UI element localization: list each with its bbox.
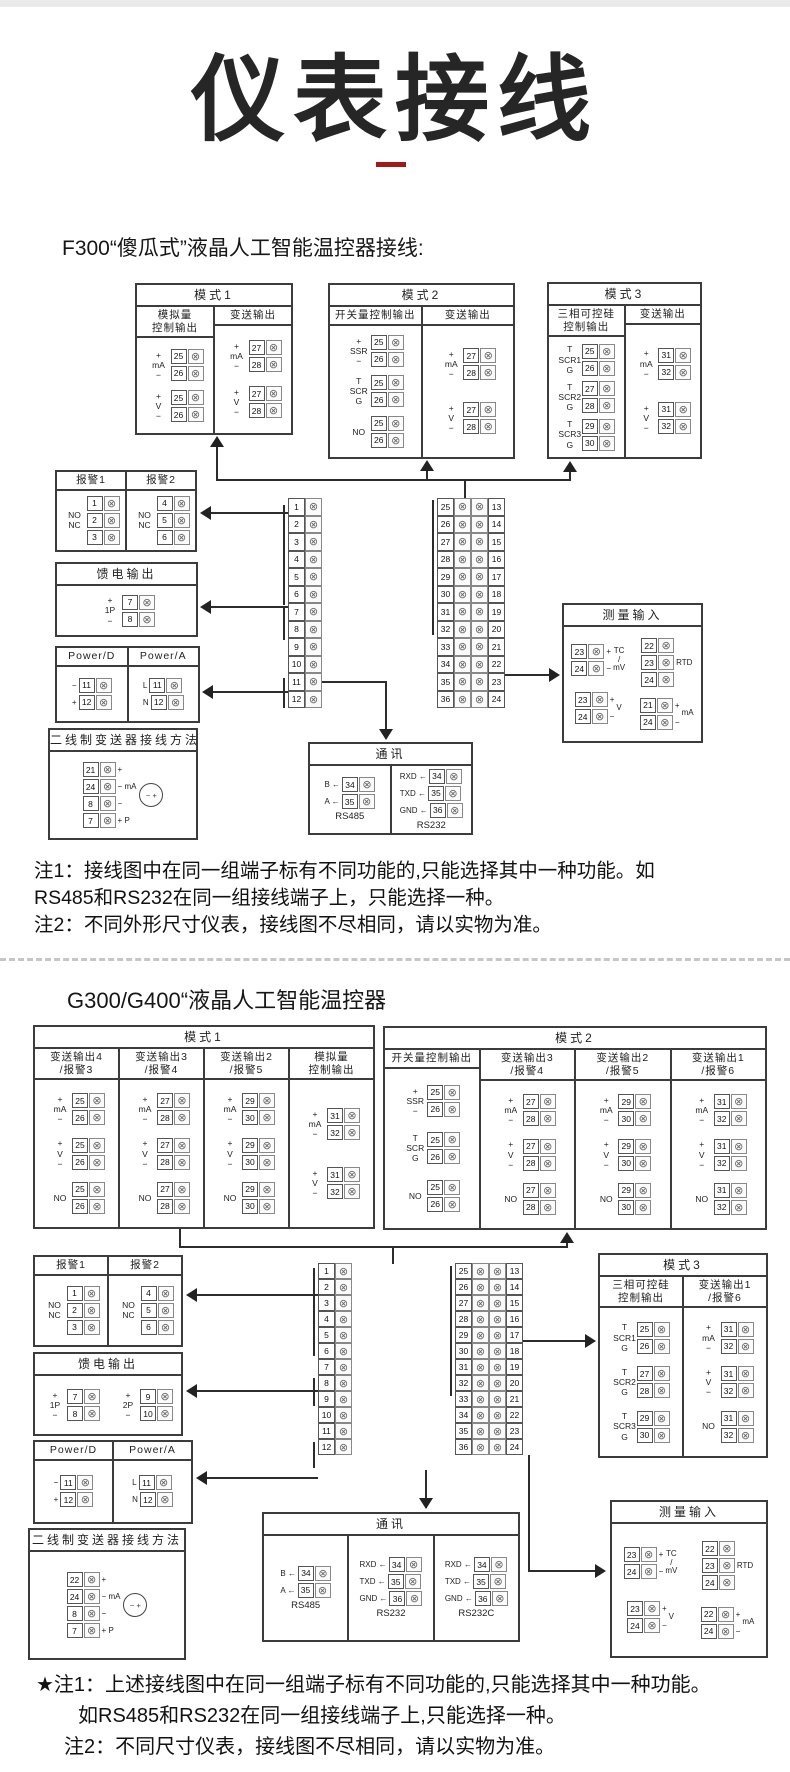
terminal-row: 7⊗+ P xyxy=(67,1623,121,1638)
terminal-stack: 25⊗26⊗ xyxy=(72,1093,105,1125)
terminal-row: 31⊗ xyxy=(721,1366,754,1381)
terminal-number: 4 xyxy=(141,1286,157,1301)
wire-label: + xyxy=(54,1495,59,1504)
box-columns: 报警1NONC1⊗2⊗3⊗报警2NONC4⊗5⊗6⊗ xyxy=(35,1257,181,1345)
terminal-number: 28 xyxy=(523,1111,539,1126)
terminal-row: 10⊗ xyxy=(140,1406,173,1421)
box-columns: 变送输出4 /报警3+mA−25⊗26⊗+V−25⊗26⊗NO25⊗26⊗变送输… xyxy=(35,1049,373,1227)
box-columns: Power/D−11⊗+12⊗Power/AL11⊗N12⊗ xyxy=(35,1442,191,1522)
wire-symbol: NO xyxy=(690,1194,714,1204)
terminal-group: 22⊗+24⊗− mA8⊗−7⊗+ P− + xyxy=(67,1572,148,1638)
connector-terminal-row: 7⊗ xyxy=(318,1359,352,1375)
terminal-rows: 29⊗30⊗ xyxy=(242,1138,275,1170)
terminal-number: 29 xyxy=(242,1138,258,1153)
terminal-row: 25⊗ xyxy=(427,1085,460,1100)
wire-symbol-line: NO xyxy=(695,1194,708,1204)
terminal-screw-icon: ⊗ xyxy=(472,1391,489,1407)
wire-line xyxy=(179,1246,567,1248)
wire-symbol: NO xyxy=(403,1191,427,1201)
terminal-row: 30⊗ xyxy=(242,1199,275,1214)
terminal-rows: 29⊗30⊗ xyxy=(618,1139,651,1171)
terminal-number: 22 xyxy=(506,1407,523,1423)
terminal-number: 29 xyxy=(242,1093,258,1108)
terminal-rows: 25⊗26⊗ xyxy=(427,1132,460,1164)
terminal-row: TXD ←35⊗ xyxy=(445,1574,508,1589)
terminal-stack: −11⊗+12⊗ xyxy=(54,1475,94,1507)
terminal-screw-icon: ⊗ xyxy=(472,1263,489,1279)
terminal-group: +mA−29⊗30⊗ xyxy=(218,1093,275,1125)
arrow-up-icon xyxy=(560,1232,574,1243)
terminal-row: 31⊗ xyxy=(721,1411,754,1426)
connector-terminal-row: 34⊗⊗22 xyxy=(455,1407,523,1423)
terminal-screw-icon: ⊗ xyxy=(654,1383,670,1398)
terminal-rows: 1⊗2⊗3⊗ xyxy=(67,1286,100,1335)
terminal-rows: 23⊗+24⊗− xyxy=(624,1547,664,1579)
terminal-row: 31⊗ xyxy=(714,1183,747,1198)
terminal-group: +mA−31⊗32⊗ xyxy=(303,1108,360,1140)
terminal-rows: L11⊗N12⊗ xyxy=(132,1475,173,1507)
terminal-stack: 25⊗26⊗ xyxy=(637,1322,670,1354)
terminal-group: +V−31⊗32⊗ xyxy=(697,1366,754,1398)
terminal-group: B ←34⊗A ←35⊗RS485 xyxy=(280,1566,331,1611)
terminal-screw-icon: ⊗ xyxy=(335,1295,352,1311)
wire-label: − xyxy=(54,1478,59,1487)
terminal-number: 21 xyxy=(506,1391,523,1407)
wire-symbol-line: SCR xyxy=(406,1143,424,1153)
terminal-screw-icon: ⊗ xyxy=(335,1375,352,1391)
wire-line xyxy=(188,1294,318,1296)
terminal-number: 31 xyxy=(714,1183,730,1198)
terminal-rows: RXD ←34⊗TXD ←35⊗GND ←36⊗ xyxy=(359,1557,422,1606)
terminal-screw-icon: ⊗ xyxy=(84,1406,100,1421)
terminal-screw-icon: ⊗ xyxy=(489,1295,506,1311)
g300-wiring-diagram: 模式1变送输出4 /报警3+mA−25⊗26⊗+V−25⊗26⊗NO25⊗26⊗… xyxy=(0,0,790,1772)
terminal-rows: 29⊗30⊗ xyxy=(618,1183,651,1215)
terminal-number: 22 xyxy=(701,1607,717,1622)
wire-symbol-line: − xyxy=(413,1106,418,1116)
terminal-rows: 9⊗10⊗ xyxy=(140,1389,173,1421)
terminal-stack: 29⊗30⊗ xyxy=(242,1182,275,1214)
terminal-number: 29 xyxy=(455,1327,472,1343)
wire-symbol-line: − xyxy=(313,1129,318,1139)
terminal-stack: 29⊗30⊗ xyxy=(618,1094,651,1126)
column-header: 模拟量 控制输出 xyxy=(290,1049,373,1080)
terminal-row: 32⊗ xyxy=(714,1156,747,1171)
transmitter-icon: − + xyxy=(123,1593,147,1617)
terminal-screw-icon: ⊗ xyxy=(738,1383,754,1398)
terminal-row: 32⊗ xyxy=(721,1339,754,1354)
terminal-number: 36 xyxy=(389,1591,405,1606)
wire-symbol: NO xyxy=(499,1194,523,1204)
wire-symbol-line: + xyxy=(313,1168,318,1178)
terminal-screw-icon: ⊗ xyxy=(84,1623,100,1638)
wire-symbol-line: + xyxy=(53,1390,58,1400)
wire-symbol-line: + xyxy=(228,1138,233,1148)
terminal-group: +V−25⊗26⊗ xyxy=(48,1138,105,1170)
terminal-number: 17 xyxy=(506,1327,523,1343)
connector-right-strip: 25⊗⊗1326⊗⊗1427⊗⊗1528⊗⊗1629⊗⊗1730⊗⊗1831⊗⊗… xyxy=(455,1263,523,1455)
wire-symbol-line: − xyxy=(126,1410,131,1420)
terminal-number: 36 xyxy=(455,1439,472,1455)
box-column: 模拟量 控制输出+mA−31⊗32⊗+V−31⊗32⊗ xyxy=(288,1049,373,1227)
terminal-row: N12⊗ xyxy=(132,1492,173,1507)
wire-symbol: +V− xyxy=(48,1138,72,1169)
terminal-number: 23 xyxy=(624,1547,640,1562)
terminal-stack: 31⊗32⊗ xyxy=(714,1139,747,1171)
wire-symbol: +V− xyxy=(218,1138,242,1169)
terminal-number: 31 xyxy=(721,1366,737,1381)
terminal-screw-icon: ⊗ xyxy=(472,1295,489,1311)
box-column: 三相可控硅 控制输出TSCR1G25⊗26⊗TSCR2G27⊗28⊗TSCR3G… xyxy=(600,1277,682,1456)
wire-symbol-line: T xyxy=(622,1367,627,1377)
terminal-number: 32 xyxy=(327,1125,343,1140)
terminal-group: NONC4⊗5⊗6⊗ xyxy=(117,1286,174,1335)
wire-symbol-line: − xyxy=(143,1114,148,1124)
terminal-screw-icon: ⊗ xyxy=(635,1111,651,1126)
wire-symbol-line: − xyxy=(508,1115,513,1125)
terminal-rows: 31⊗32⊗ xyxy=(327,1167,360,1199)
terminal-rows: 22⊗23⊗24⊗ xyxy=(702,1541,735,1590)
terminal-screw-icon: ⊗ xyxy=(731,1111,747,1126)
terminal-group: NO27⊗28⊗ xyxy=(133,1182,190,1214)
wire-line xyxy=(198,1477,318,1479)
terminal-screw-icon: ⊗ xyxy=(641,1547,657,1562)
terminal-screw-icon: ⊗ xyxy=(89,1182,105,1197)
terminal-row: 22⊗+ xyxy=(67,1572,121,1587)
wire-symbol-line: + xyxy=(413,1086,418,1096)
terminal-group: +1P−7⊗8⊗ xyxy=(43,1389,100,1421)
terminal-number: 31 xyxy=(327,1167,343,1182)
box-g300-power: Power/D−11⊗+12⊗Power/AL11⊗N12⊗ xyxy=(33,1440,193,1524)
terminal-number: 25 xyxy=(72,1182,88,1197)
wire-symbol: NONC xyxy=(117,1300,141,1320)
terminal-row: 28⊗ xyxy=(637,1383,670,1398)
terminal-row: RXD ←34⊗ xyxy=(445,1557,508,1572)
terminal-stack: 25⊗26⊗ xyxy=(72,1182,105,1214)
wire-symbol-line: SSR xyxy=(407,1096,424,1106)
connector-terminal-row: 27⊗⊗15 xyxy=(455,1295,523,1311)
wire-symbol-line: − xyxy=(699,1160,704,1170)
wire-symbol-line: − xyxy=(508,1160,513,1170)
terminal-group: 23⊗+24⊗−V xyxy=(627,1601,674,1633)
terminal-screw-icon: ⊗ xyxy=(84,1320,100,1335)
connector-terminal-row: 33⊗⊗21 xyxy=(455,1391,523,1407)
terminal-number: 32 xyxy=(714,1156,730,1171)
terminal-stack: 29⊗30⊗ xyxy=(242,1093,275,1125)
arrow-down-icon xyxy=(419,1498,433,1509)
column-header: 三相可控硅 控制输出 xyxy=(600,1277,682,1308)
terminal-group: NO29⊗30⊗ xyxy=(594,1183,651,1215)
terminal-number: 35 xyxy=(388,1574,404,1589)
terminal-group: +V−29⊗30⊗ xyxy=(594,1139,651,1171)
terminal-screw-icon: ⊗ xyxy=(641,1564,657,1579)
terminal-screw-icon: ⊗ xyxy=(84,1286,100,1301)
terminal-row: 6⊗ xyxy=(141,1320,174,1335)
terminal-rows: 25⊗26⊗ xyxy=(637,1322,670,1354)
wire-symbol: +mA− xyxy=(594,1095,618,1126)
wire-symbol: +mA− xyxy=(48,1094,72,1125)
column-groups: +mA−27⊗28⊗+V−27⊗28⊗NO27⊗28⊗ xyxy=(120,1080,203,1227)
wire-symbol: NONC xyxy=(43,1300,67,1320)
terminal-stack: 31⊗32⊗ xyxy=(721,1411,754,1443)
terminal-group: +mA−31⊗32⊗ xyxy=(697,1322,754,1354)
terminal-screw-icon: ⊗ xyxy=(259,1138,275,1153)
wire-symbol-line: + xyxy=(143,1138,148,1148)
terminal-group: NO31⊗32⊗ xyxy=(697,1411,754,1443)
terminal-screw-icon: ⊗ xyxy=(489,1311,506,1327)
terminal-rows: 23⊗+24⊗− xyxy=(627,1601,667,1633)
wire-symbol-line: G xyxy=(621,1432,628,1442)
wire-symbol-line: NC xyxy=(48,1310,60,1320)
column-groups: NONC4⊗5⊗6⊗ xyxy=(109,1276,181,1345)
terminal-group: +mA−25⊗26⊗ xyxy=(48,1093,105,1125)
terminal-row: 7⊗ xyxy=(67,1389,100,1404)
terminal-group: +SSR−25⊗26⊗ xyxy=(403,1085,460,1117)
terminal-number: 10 xyxy=(318,1407,335,1423)
terminal-screw-icon: ⊗ xyxy=(489,1391,506,1407)
terminal-row: 30⊗ xyxy=(618,1111,651,1126)
terminal-number: 26 xyxy=(72,1199,88,1214)
terminal-screw-icon: ⊗ xyxy=(489,1263,506,1279)
terminal-number: 24 xyxy=(701,1624,717,1639)
terminal-row: 28⊗ xyxy=(157,1155,190,1170)
wire-line xyxy=(528,1455,530,1572)
wire-symbol-line: − xyxy=(58,1114,63,1124)
terminal-row: 31⊗ xyxy=(714,1094,747,1109)
terminal-group: +V−29⊗30⊗ xyxy=(218,1138,275,1170)
wire-symbol-line: V xyxy=(508,1150,514,1160)
terminal-screw-icon: ⊗ xyxy=(77,1492,93,1507)
terminal-group: −11⊗+12⊗ xyxy=(54,1475,94,1507)
terminal-screw-icon: ⊗ xyxy=(344,1167,360,1182)
terminal-rows: 29⊗30⊗ xyxy=(637,1411,670,1443)
box-column: 变送输出2 /报警5+mA−29⊗30⊗+V−29⊗30⊗NO29⊗30⊗ xyxy=(203,1049,288,1227)
column-groups: +mA−31⊗32⊗+V−31⊗32⊗ xyxy=(290,1080,373,1227)
terminal-screw-icon: ⊗ xyxy=(738,1428,754,1443)
terminal-rows: 25⊗26⊗ xyxy=(72,1138,105,1170)
terminal-number: 8 xyxy=(318,1375,335,1391)
wire-symbol-line: NO xyxy=(224,1193,237,1203)
terminal-rows: 31⊗32⊗ xyxy=(714,1183,747,1215)
terminal-number: 30 xyxy=(242,1110,258,1125)
terminal-screw-icon: ⊗ xyxy=(472,1359,489,1375)
wire-symbol: +SSR− xyxy=(403,1086,427,1117)
wire-symbol: NO xyxy=(697,1421,721,1431)
wire-symbol-line: V xyxy=(706,1377,712,1387)
terminal-row: 25⊗ xyxy=(427,1132,460,1147)
terminal-stack: 27⊗28⊗ xyxy=(157,1138,190,1170)
terminal-number: 27 xyxy=(523,1139,539,1154)
terminal-stack: 29⊗30⊗ xyxy=(242,1138,275,1170)
column-header: 报警1 xyxy=(35,1257,107,1276)
terminal-row: 4⊗ xyxy=(141,1286,174,1301)
terminal-row: 25⊗ xyxy=(72,1182,105,1197)
terminal-group: L11⊗N12⊗ xyxy=(132,1475,173,1507)
terminal-screw-icon: ⊗ xyxy=(444,1149,460,1164)
box-title: 模式1 xyxy=(35,1027,373,1049)
terminal-number: 25 xyxy=(427,1180,443,1195)
wire-symbol: +1P− xyxy=(43,1390,67,1421)
wire-label: + xyxy=(662,1604,667,1613)
terminal-number: 29 xyxy=(618,1139,634,1154)
terminal-number: 28 xyxy=(523,1200,539,1215)
wire-symbol-line: G xyxy=(412,1153,419,1163)
terminal-screw-icon: ⊗ xyxy=(719,1575,735,1590)
terminal-number: 11 xyxy=(139,1475,155,1490)
terminal-row: 26⊗ xyxy=(427,1149,460,1164)
terminal-screw-icon: ⊗ xyxy=(540,1111,556,1126)
terminal-screw-icon: ⊗ xyxy=(635,1139,651,1154)
terminal-screw-icon: ⊗ xyxy=(174,1155,190,1170)
terminal-screw-icon: ⊗ xyxy=(335,1279,352,1295)
terminal-screw-icon: ⊗ xyxy=(654,1411,670,1426)
terminal-screw-icon: ⊗ xyxy=(738,1322,754,1337)
wire-symbol: TSCR2G xyxy=(613,1367,637,1398)
terminal-row: 30⊗ xyxy=(618,1156,651,1171)
wire-label: RXD ← xyxy=(359,1560,386,1569)
terminal-stack: 31⊗32⊗ xyxy=(714,1183,747,1215)
column-header: 变送输出2 /报警5 xyxy=(205,1049,288,1080)
terminal-row: 26⊗ xyxy=(427,1102,460,1117)
terminal-screw-icon: ⊗ xyxy=(540,1156,556,1171)
signal-type-label: RTD xyxy=(737,1562,753,1570)
terminal-stack: 29⊗30⊗ xyxy=(618,1183,651,1215)
terminal-rows: 27⊗28⊗ xyxy=(157,1093,190,1125)
connector-terminal-row: 10⊗ xyxy=(318,1407,352,1423)
terminal-row: 23⊗ xyxy=(702,1558,735,1573)
terminal-number: 34 xyxy=(474,1557,490,1572)
wire-symbol: +mA− xyxy=(218,1094,242,1125)
terminal-screw-icon: ⊗ xyxy=(654,1322,670,1337)
wire-label: N xyxy=(132,1495,138,1504)
terminal-stack: 31⊗32⊗ xyxy=(721,1322,754,1354)
terminal-rows: 31⊗32⊗ xyxy=(714,1139,747,1171)
terminal-screw-icon: ⊗ xyxy=(158,1320,174,1335)
wire-symbol-line: − xyxy=(58,1159,63,1169)
terminal-number: 31 xyxy=(721,1322,737,1337)
terminal-screw-icon: ⊗ xyxy=(719,1558,735,1573)
wire-symbol: +mA− xyxy=(697,1322,721,1353)
terminal-screw-icon: ⊗ xyxy=(174,1110,190,1125)
wire-symbol: +V− xyxy=(690,1139,714,1170)
box-column: 变送输出4 /报警3+mA−25⊗26⊗+V−25⊗26⊗NO25⊗26⊗ xyxy=(35,1049,118,1227)
terminal-screw-icon: ⊗ xyxy=(89,1199,105,1214)
terminal-screw-icon: ⊗ xyxy=(335,1407,352,1423)
terminal-group: +2P−9⊗10⊗ xyxy=(116,1389,173,1421)
terminal-rows: 22⊗+24⊗− xyxy=(701,1607,741,1639)
box-column: RXD ←34⊗TXD ←35⊗GND ←36⊗RS232C xyxy=(433,1536,518,1640)
wire-symbol: +V− xyxy=(594,1139,618,1170)
arrow-right-icon xyxy=(595,1564,606,1578)
wire-symbol-line: + xyxy=(143,1094,148,1104)
terminal-row: 24⊗ xyxy=(702,1575,735,1590)
connector-terminal-row: 25⊗⊗13 xyxy=(455,1263,523,1279)
terminal-number: 29 xyxy=(242,1182,258,1197)
wire-symbol-line: NO xyxy=(48,1300,61,1310)
connector-terminal-row: 6⊗ xyxy=(318,1343,352,1359)
wire-label: + xyxy=(659,1550,664,1559)
terminal-screw-icon: ⊗ xyxy=(344,1125,360,1140)
terminal-row: 27⊗ xyxy=(523,1183,556,1198)
wire-symbol: +2P− xyxy=(116,1390,140,1421)
terminal-row: 22⊗ xyxy=(702,1541,735,1556)
note-line: 如RS485和RS232在同一组接线端子上,只能选择一种。 xyxy=(78,1701,784,1732)
wire-symbol-line: + xyxy=(604,1095,609,1105)
wire-symbol-line: + xyxy=(58,1094,63,1104)
terminal-screw-icon: ⊗ xyxy=(489,1359,506,1375)
terminal-number: 25 xyxy=(72,1138,88,1153)
terminal-number: 26 xyxy=(455,1279,472,1295)
terminal-screw-icon: ⊗ xyxy=(472,1327,489,1343)
terminal-row: 27⊗ xyxy=(637,1366,670,1381)
wire-label: A ← xyxy=(280,1586,295,1595)
terminal-row: 28⊗ xyxy=(523,1200,556,1215)
terminal-row: 25⊗ xyxy=(637,1322,670,1337)
terminal-number: 25 xyxy=(427,1085,443,1100)
column-header: 变送输出3 /报警4 xyxy=(481,1050,575,1081)
terminal-rows: RXD ←34⊗TXD ←35⊗GND ←36⊗ xyxy=(445,1557,508,1606)
terminal-number: 28 xyxy=(157,1199,173,1214)
terminal-number: 30 xyxy=(242,1155,258,1170)
box-g300-feed: 馈电输出+1P−7⊗8⊗+2P−9⊗10⊗ xyxy=(33,1352,183,1436)
connector-terminal-row: 31⊗⊗19 xyxy=(455,1359,523,1375)
box-g300-measure: 测量输入23⊗+24⊗−TC / mV23⊗+24⊗−V22⊗23⊗24⊗RTD… xyxy=(610,1500,768,1658)
terminal-stack: 29⊗30⊗ xyxy=(618,1139,651,1171)
box-column: 变送输出3 /报警4+mA−27⊗28⊗+V−27⊗28⊗NO27⊗28⊗ xyxy=(118,1049,203,1227)
terminal-screw-icon: ⊗ xyxy=(335,1423,352,1439)
wire-symbol-line: NO xyxy=(600,1194,613,1204)
terminal-number: 5 xyxy=(141,1303,157,1318)
box-columns: 22⊗+24⊗− mA8⊗−7⊗+ P− + xyxy=(30,1552,184,1658)
box-column: RXD ←34⊗TXD ←35⊗GND ←36⊗RS232 xyxy=(347,1536,432,1640)
wire-symbol-line: G xyxy=(621,1387,628,1397)
terminal-screw-icon: ⊗ xyxy=(315,1566,331,1581)
terminal-screw-icon: ⊗ xyxy=(157,1389,173,1404)
terminal-screw-icon: ⊗ xyxy=(654,1339,670,1354)
port-label: RS485 xyxy=(291,1600,320,1611)
terminal-rows: 27⊗28⊗ xyxy=(637,1366,670,1398)
terminal-stack: 29⊗30⊗ xyxy=(637,1411,670,1443)
wire-symbol-line: − xyxy=(699,1115,704,1125)
column-header: 报警2 xyxy=(109,1257,181,1276)
wire-symbol-line: V xyxy=(603,1150,609,1160)
terminal-group: TSCR1G25⊗26⊗ xyxy=(613,1322,670,1354)
terminal-screw-icon: ⊗ xyxy=(472,1279,489,1295)
terminal-stack: RXD ←34⊗TXD ←35⊗GND ←36⊗RS232 xyxy=(359,1557,422,1619)
terminal-group: +mA−29⊗30⊗ xyxy=(594,1094,651,1126)
connector-terminal-row: 1⊗ xyxy=(318,1263,352,1279)
arrow-right-icon xyxy=(585,1334,596,1348)
terminal-number: 8 xyxy=(67,1606,83,1621)
terminal-row: 25⊗ xyxy=(72,1138,105,1153)
terminal-rows: 22⊗+24⊗− mA8⊗−7⊗+ P xyxy=(67,1572,121,1638)
box-column: B ←34⊗A ←35⊗RS485 xyxy=(264,1536,347,1640)
box-column: Power/D−11⊗+12⊗ xyxy=(35,1442,112,1522)
wire-symbol-line: + xyxy=(699,1095,704,1105)
terminal-group: NO25⊗26⊗ xyxy=(403,1180,460,1212)
terminal-number: 12 xyxy=(318,1439,335,1455)
terminal-number: 30 xyxy=(618,1156,634,1171)
column-groups: +mA−27⊗28⊗+V−27⊗28⊗NO27⊗28⊗ xyxy=(481,1081,575,1228)
terminal-screw-icon: ⊗ xyxy=(335,1391,352,1407)
wire-symbol-line: NO xyxy=(702,1421,715,1431)
connector-terminal-row: 26⊗⊗14 xyxy=(455,1279,523,1295)
terminal-group: RXD ←34⊗TXD ←35⊗GND ←36⊗RS232 xyxy=(359,1557,422,1619)
wire-symbol-line: 2P xyxy=(123,1400,133,1410)
terminal-rows: 27⊗28⊗ xyxy=(523,1094,556,1126)
connector-terminal-row: 32⊗⊗20 xyxy=(455,1375,523,1391)
terminal-screw-icon: ⊗ xyxy=(492,1591,508,1606)
